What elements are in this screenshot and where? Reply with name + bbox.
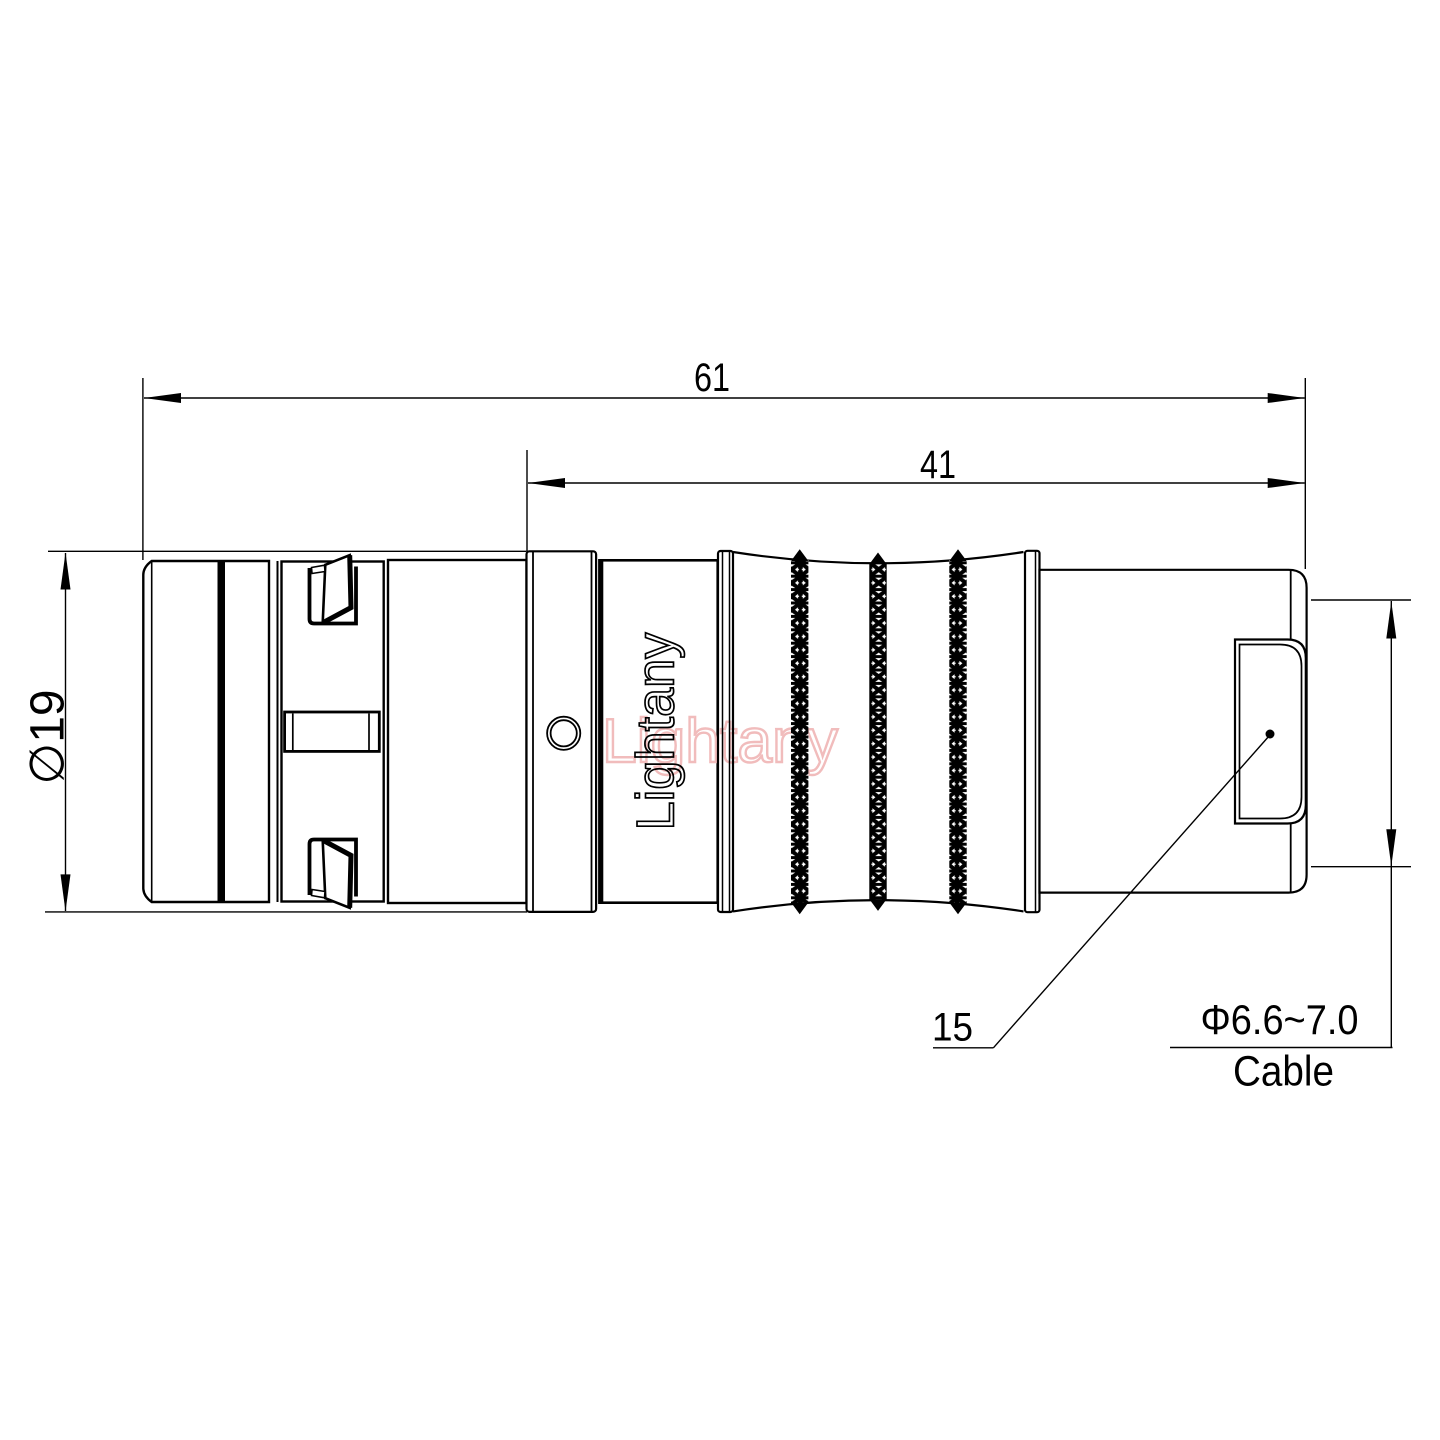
svg-text:Lightany: Lightany xyxy=(627,632,686,830)
svg-text:Φ6.6~7.0: Φ6.6~7.0 xyxy=(1201,996,1359,1043)
svg-text:Cable: Cable xyxy=(1233,1048,1334,1096)
svg-text:∅19: ∅19 xyxy=(22,689,75,784)
svg-text:41: 41 xyxy=(920,443,956,487)
svg-text:15: 15 xyxy=(932,1006,973,1050)
svg-text:61: 61 xyxy=(694,356,730,400)
